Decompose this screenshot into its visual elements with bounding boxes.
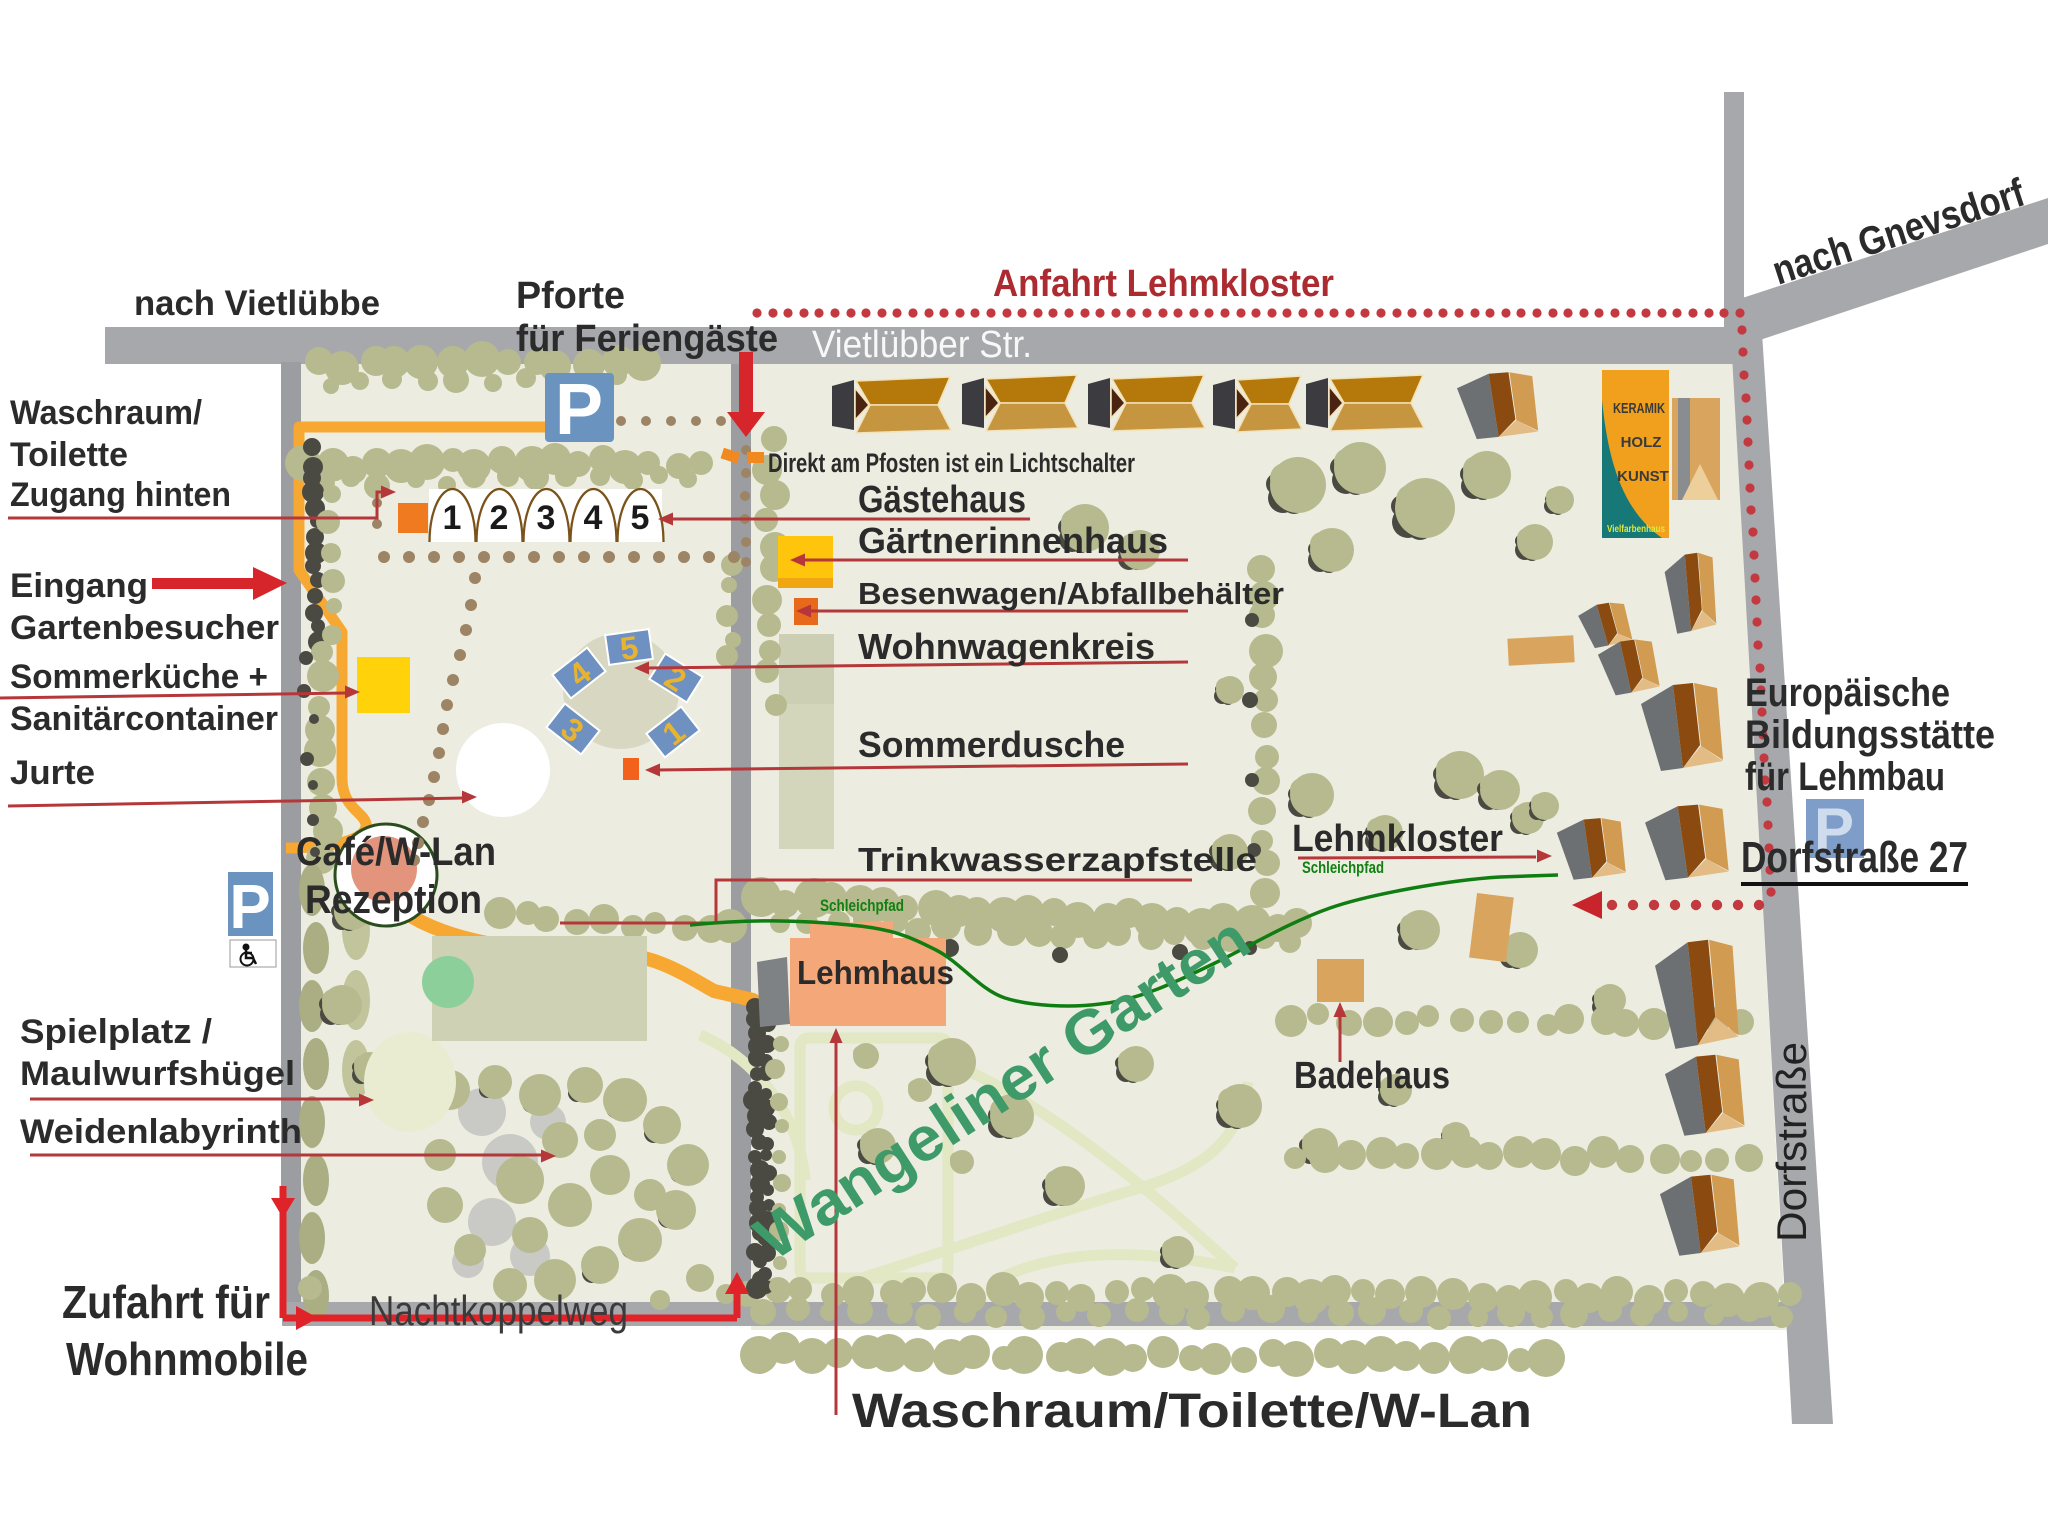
svg-text:Weidenlabyrinth: Weidenlabyrinth xyxy=(20,1113,302,1151)
svg-text:für Lehmbau: für Lehmbau xyxy=(1745,755,1945,799)
svg-text:Schleichpfad: Schleichpfad xyxy=(820,896,904,915)
svg-text:Gästehaus: Gästehaus xyxy=(858,479,1026,521)
svg-text:Sanitärcontainer: Sanitärcontainer xyxy=(10,700,278,738)
svg-text:Zufahrt für: Zufahrt für xyxy=(62,1276,270,1328)
svg-text:Waschraum/Toilette/W-Lan: Waschraum/Toilette/W-Lan xyxy=(852,1385,1532,1438)
svg-text:Dorfstraße: Dorfstraße xyxy=(1768,1042,1815,1242)
svg-text:Badehaus: Badehaus xyxy=(1294,1055,1450,1097)
svg-text:HOLZ: HOLZ xyxy=(1621,434,1662,451)
svg-text:Eingang: Eingang xyxy=(10,567,148,605)
svg-text:Spielplatz /: Spielplatz / xyxy=(20,1013,213,1051)
svg-text:P: P xyxy=(229,873,270,942)
svg-text:für Feriengäste: für Feriengäste xyxy=(516,318,778,360)
svg-text:Wohnwagenkreis: Wohnwagenkreis xyxy=(858,626,1155,667)
svg-text:Jurte: Jurte xyxy=(10,754,95,792)
svg-text:Bildungsstätte: Bildungsstätte xyxy=(1745,713,1995,757)
svg-text:Besenwagen/Abfallbehälter: Besenwagen/Abfallbehälter xyxy=(858,576,1284,611)
svg-text:Nachtkoppelweg: Nachtkoppelweg xyxy=(369,1287,628,1334)
svg-text:Wohnmobile: Wohnmobile xyxy=(66,1333,308,1385)
svg-text:Waschraum/: Waschraum/ xyxy=(10,394,203,432)
svg-text:KUNST: KUNST xyxy=(1617,468,1669,485)
svg-text:Trinkwasserzapfstelle: Trinkwasserzapfstelle xyxy=(858,841,1257,878)
svg-text:3: 3 xyxy=(537,499,556,537)
svg-text:Vielfarbenhaus: Vielfarbenhaus xyxy=(1607,523,1665,535)
svg-text:Lehmhaus: Lehmhaus xyxy=(797,954,954,991)
svg-text:Direkt am Pfosten ist ein Lich: Direkt am Pfosten ist ein Lichtschalter xyxy=(768,448,1135,478)
svg-text:Gärtnerinnenhaus: Gärtnerinnenhaus xyxy=(858,520,1168,561)
svg-text:4: 4 xyxy=(584,499,603,537)
svg-text:Gartenbesucher: Gartenbesucher xyxy=(10,609,279,647)
svg-text:Schleichpfad: Schleichpfad xyxy=(1302,858,1384,877)
svg-text:5: 5 xyxy=(631,499,650,537)
svg-text:Vietlübber Str.: Vietlübber Str. xyxy=(812,324,1032,366)
svg-text:Sommerküche +: Sommerküche + xyxy=(10,658,268,696)
svg-text:Café/W-Lan: Café/W-Lan xyxy=(296,830,496,874)
svg-text:1: 1 xyxy=(443,499,462,537)
svg-text:2: 2 xyxy=(490,499,509,537)
svg-text:Lehmkloster: Lehmkloster xyxy=(1292,818,1503,860)
svg-text:Zugang hinten: Zugang hinten xyxy=(10,476,231,514)
svg-text:Pforte: Pforte xyxy=(516,275,625,317)
svg-text:Europäische: Europäische xyxy=(1745,671,1950,715)
svg-text:nach Vietlübbe: nach Vietlübbe xyxy=(134,284,380,323)
svg-text:P: P xyxy=(555,370,603,450)
svg-text:Rezeption: Rezeption xyxy=(305,878,482,922)
svg-text:Toilette: Toilette xyxy=(10,436,128,474)
svg-text:Dorfstraße 27: Dorfstraße 27 xyxy=(1741,833,1968,882)
svg-text:KERAMIK: KERAMIK xyxy=(1613,400,1665,417)
svg-text:Anfahrt Lehmkloster: Anfahrt Lehmkloster xyxy=(993,263,1334,305)
svg-text:Maulwurfshügel: Maulwurfshügel xyxy=(20,1055,295,1093)
svg-text:Sommerdusche: Sommerdusche xyxy=(858,724,1125,765)
